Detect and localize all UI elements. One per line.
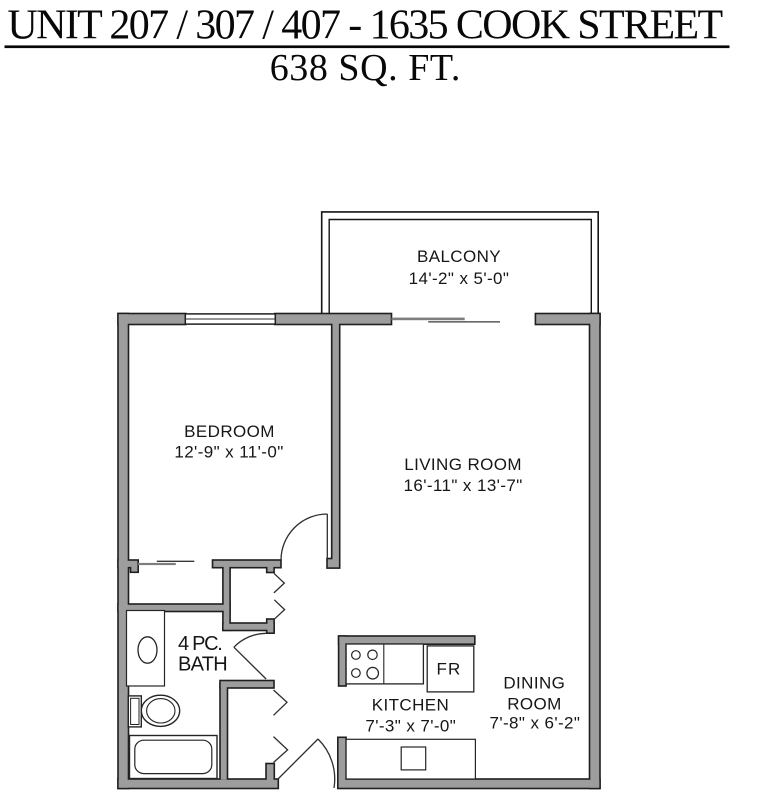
svg-text:ROOM: ROOM xyxy=(507,694,561,713)
svg-text:UNIT 207 / 307 / 407 - 1635 CO: UNIT 207 / 307 / 407 - 1635 COOK STREET xyxy=(7,3,722,49)
svg-text:BATH: BATH xyxy=(178,654,227,676)
svg-text:7'-3" x 7'-0": 7'-3" x 7'-0" xyxy=(365,717,456,736)
svg-text:4 PC.: 4 PC. xyxy=(178,633,222,655)
svg-text:12'-9" x 11'-0": 12'-9" x 11'-0" xyxy=(174,442,283,461)
svg-text:16'-11" x 13'-7": 16'-11" x 13'-7" xyxy=(404,476,523,495)
svg-text:7'-8" x 6'-2": 7'-8" x 6'-2" xyxy=(489,713,580,732)
svg-text:638 SQ. FT.: 638 SQ. FT. xyxy=(270,47,461,89)
svg-text:BALCONY: BALCONY xyxy=(417,247,501,266)
svg-text:DINING: DINING xyxy=(503,674,565,693)
svg-text:BEDROOM: BEDROOM xyxy=(184,422,275,441)
svg-text:FR: FR xyxy=(436,660,461,679)
svg-text:14'-2" x 5'-0": 14'-2" x 5'-0" xyxy=(409,269,510,288)
svg-text:LIVING ROOM: LIVING ROOM xyxy=(404,455,522,474)
svg-text:KITCHEN: KITCHEN xyxy=(372,696,449,715)
